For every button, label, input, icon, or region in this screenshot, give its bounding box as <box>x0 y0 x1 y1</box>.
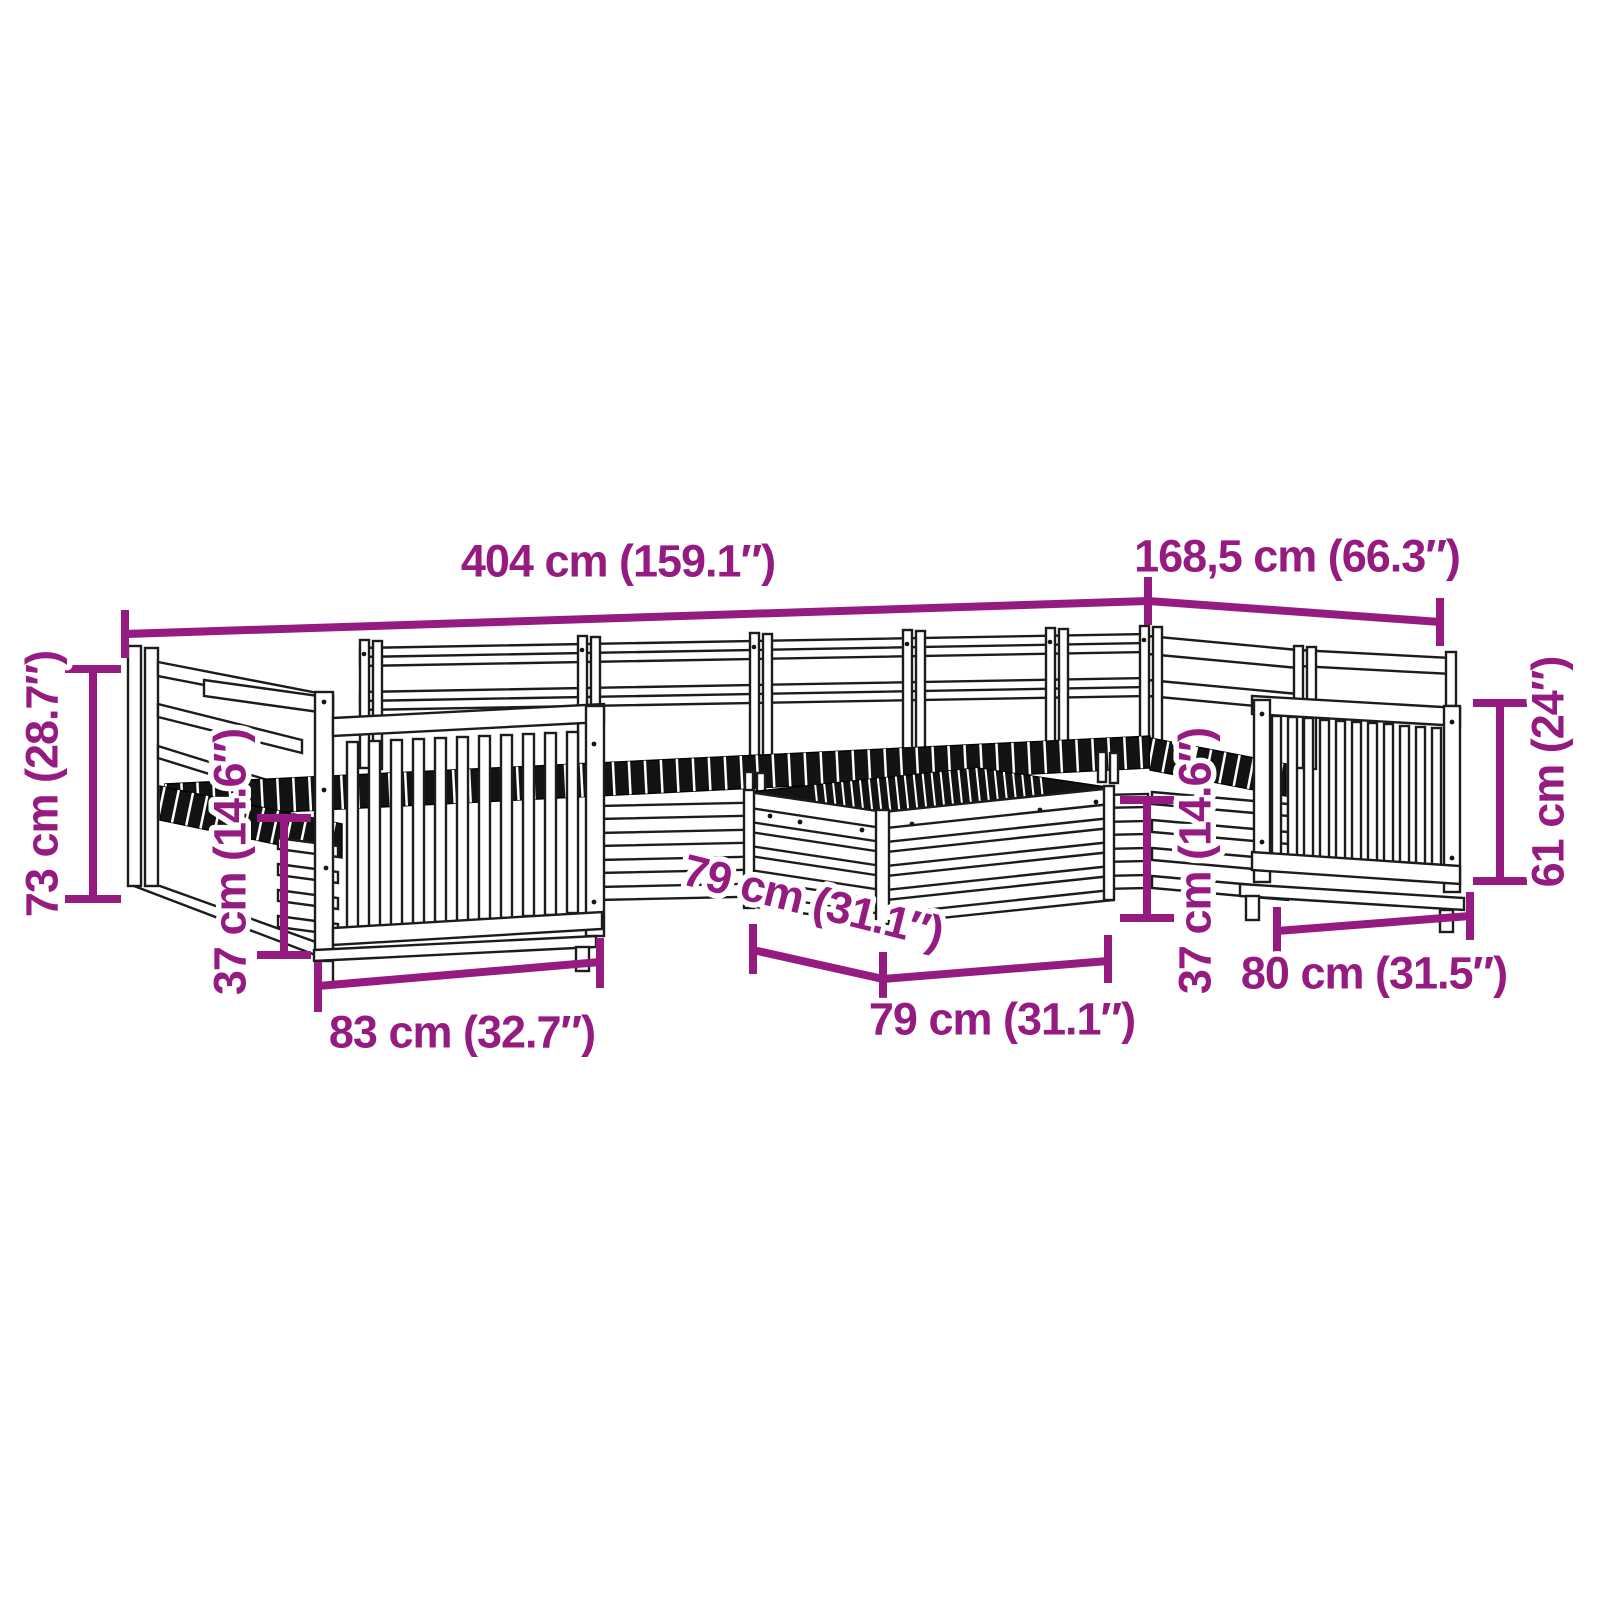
dim-seat-height-left: 37 cm (14.6″) <box>205 729 312 995</box>
right-armchair-width-label: 80 cm (31.5″) <box>1241 948 1507 999</box>
dim-overall-height: 73 cm (28.7″) <box>17 651 122 917</box>
garden-set-drawing <box>128 626 1464 987</box>
overall-depth-label: 168,5 cm (66.3″) <box>1134 531 1460 582</box>
table-width-label: 79 cm (31.1″) <box>869 994 1135 1045</box>
backrest-height-label: 61 cm (24″) <box>1523 657 1574 888</box>
right-armchair <box>1240 696 1464 932</box>
left-armchair-width-label: 83 cm (32.7″) <box>329 1007 595 1058</box>
dim-right-armchair-width: 80 cm (31.5″) <box>1241 892 1507 999</box>
overall-height-label: 73 cm (28.7″) <box>17 651 68 917</box>
dimension-diagram: 404 cm (159.1″) 168,5 cm (66.3″) 73 cm (… <box>0 0 1600 1600</box>
seat-height-left-label: 37 cm (14.6″) <box>205 729 256 995</box>
dim-backrest-height: 61 cm (24″) <box>1473 657 1574 888</box>
seat-height-right-label: 37 cm (14.6″) <box>1170 728 1221 994</box>
dim-overall-depth: 168,5 cm (66.3″) <box>1134 531 1460 647</box>
overall-width-label: 404 cm (159.1″) <box>461 536 775 587</box>
dim-table-width: 79 cm (31.1″) <box>869 935 1135 1045</box>
garden-set-diagram-svg: 404 cm (159.1″) 168,5 cm (66.3″) 73 cm (… <box>0 0 1600 1600</box>
